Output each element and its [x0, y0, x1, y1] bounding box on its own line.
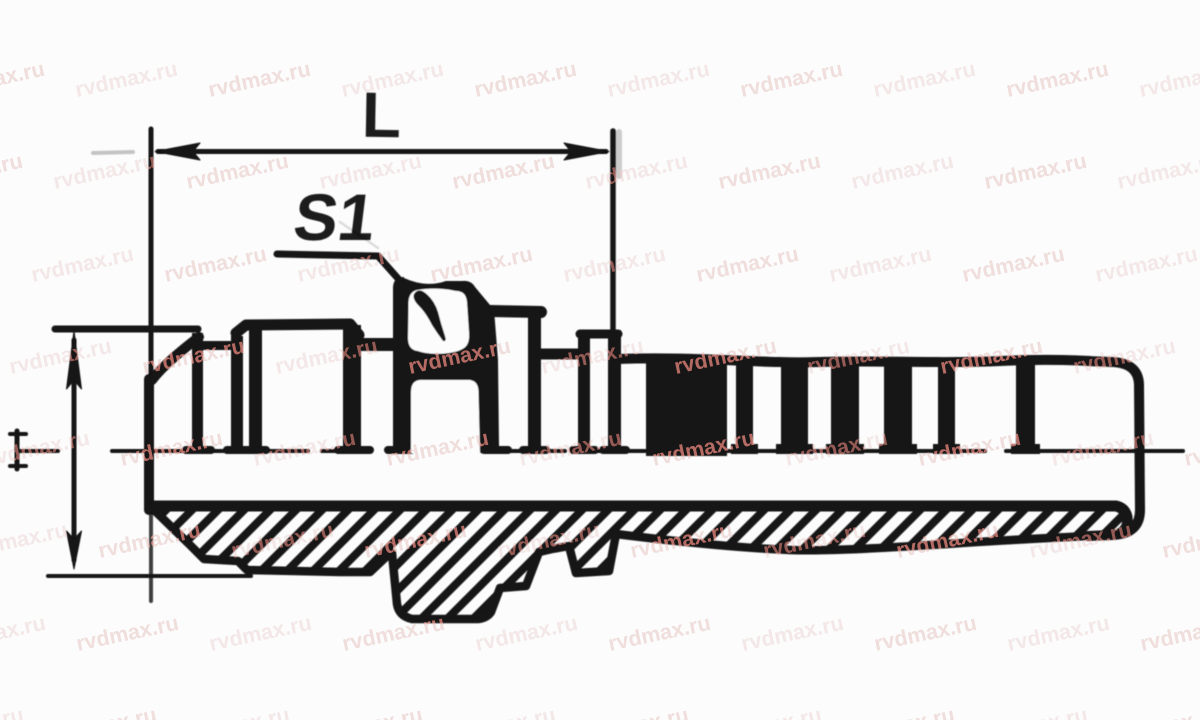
- svg-text:S1: S1: [290, 181, 380, 255]
